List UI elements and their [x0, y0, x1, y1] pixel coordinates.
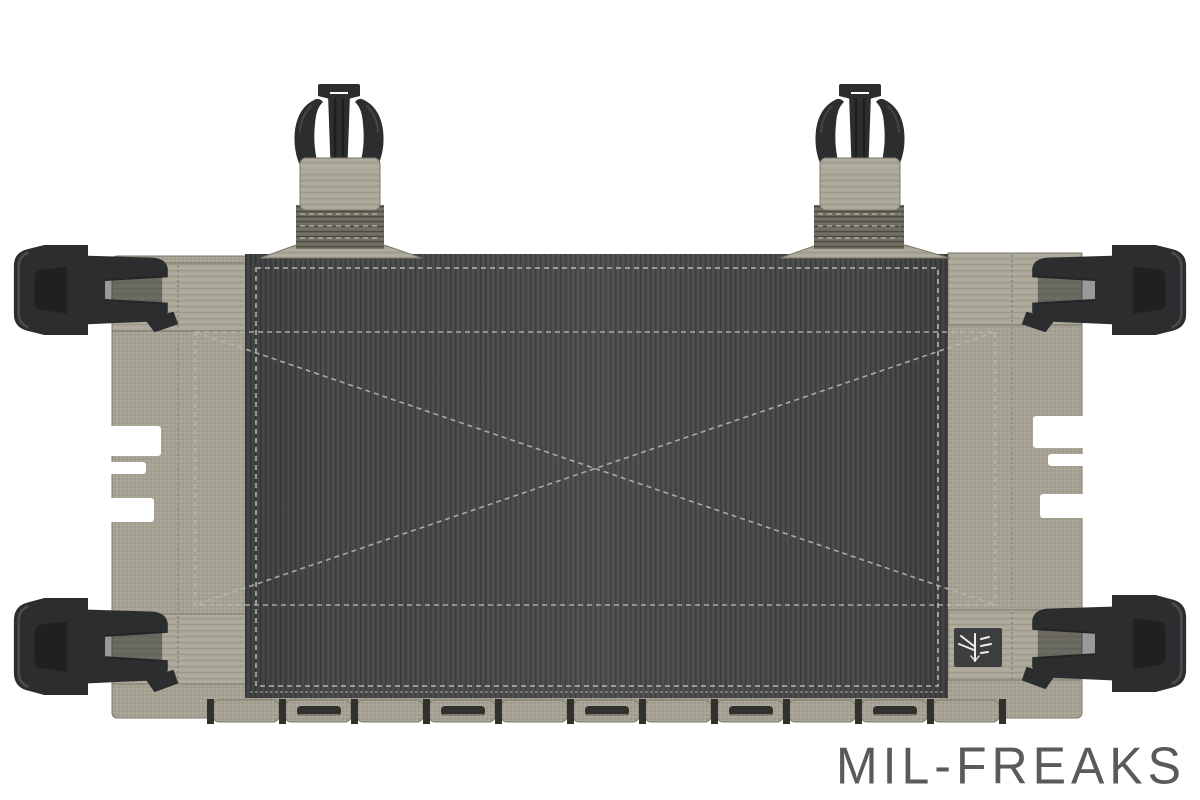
corner-buckle-bottom-right [1022, 595, 1186, 692]
corner-buckle-top-left [14, 245, 178, 335]
velcro-loop-field [195, 254, 995, 698]
corner-buckle-bottom-left [14, 598, 178, 695]
strap-loop-right [820, 158, 900, 210]
brand-tag [954, 628, 1002, 667]
strap-bartack-right [814, 205, 904, 249]
watermark-text: MIL-FREAKS [836, 740, 1186, 792]
molle-slot-row [207, 699, 1006, 724]
strap-loop-left [300, 158, 380, 210]
corner-buckle-top-right [1022, 245, 1186, 335]
shoulder-strap-right [780, 84, 950, 258]
product-photo [0, 0, 1200, 800]
velcro-shading [245, 254, 948, 698]
strap-bartack-left [296, 205, 384, 249]
chest-rig-panel-illustration [0, 0, 1200, 800]
shoulder-strap-left [260, 84, 422, 258]
